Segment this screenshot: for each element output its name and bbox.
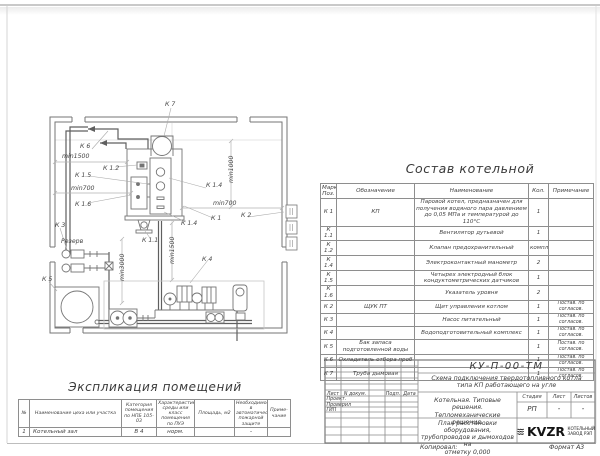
format-label: Формат А3 (549, 444, 584, 451)
explic-col-num: № (19, 400, 30, 428)
cell-name: Водоподготовительный комплекс (415, 326, 529, 339)
plan-label-min1500-vertical: min1500 (169, 237, 176, 264)
table-row: К 1.1Вентилятор дутьевой1 (321, 226, 594, 241)
cell-environment: норм. (157, 428, 195, 436)
cell-designation: Труба дымовая (337, 367, 415, 380)
plan-label-reserve: Резерв (61, 238, 84, 245)
cell-designation (337, 326, 415, 339)
explic-col-fire: Необходимость в автоматической пожарной … (235, 400, 268, 428)
cell-mark: К 1.2 (321, 241, 337, 256)
plan-label-k2: К 2 (241, 212, 251, 219)
cell-qty: 1 (529, 313, 549, 326)
cell-designation (337, 271, 415, 286)
role-chief-engineer: ГИП (327, 408, 357, 414)
cell-designation (337, 241, 415, 256)
cell-mark: К 5 (321, 339, 337, 354)
explic-col-category: Категория помещения по НПБ 105-03 (122, 400, 157, 428)
doc-number: КУ-П-00-ТМ (418, 361, 595, 373)
plan-label-k6: К 6 (80, 143, 90, 150)
water-treatment-k4 (137, 285, 247, 323)
sheet-header: Лист (547, 394, 571, 400)
table-row: 1 Котельный зал В 4 норм. - (19, 428, 291, 436)
cell-mark: К 1 (321, 198, 337, 226)
plan-label-min1000-vertical: min1000 (228, 156, 235, 183)
cell-name: Клапан предохранительный (415, 241, 529, 256)
table-row: К 1.2Клапан предохранительныйкомпл. (321, 241, 594, 256)
explication-table: № Наименование цеха или участка Категори… (18, 399, 291, 437)
cell-name: Электроконтактный манометр (415, 256, 529, 271)
sostav-col-note: Примечание (549, 184, 594, 199)
cell-qty: 2 (529, 256, 549, 271)
explic-col-note: Приме-чание (268, 400, 291, 428)
cell-note (549, 285, 594, 300)
logo-text: KVZR (527, 424, 565, 439)
plan-label-min700-left: min700 (71, 185, 95, 192)
explication-header-row: № Наименование цеха или участка Категори… (19, 400, 291, 428)
doc-description-line2: типа КП работающего на угле (420, 382, 593, 389)
company-name-line2: ЗАВОД РЭП (568, 431, 595, 436)
plan-label-k4: К 4 (202, 256, 212, 263)
plan-label-k1: К 1 (211, 215, 221, 222)
cell-qty: 2 (529, 285, 549, 300)
cell-qty: 1 (529, 339, 549, 354)
plan-label-min1500: min1500 (62, 153, 89, 160)
plan-label-k1-4-upper: К 1.4 (206, 182, 222, 189)
explic-col-area: Площадь, м2 (195, 400, 235, 428)
sheets-header: Листов (571, 394, 595, 400)
table-row: К 1.4Электроконтактный манометр2 (321, 256, 594, 271)
cell-num: 1 (19, 428, 30, 436)
cell-name: Вентилятор дутьевой (415, 226, 529, 241)
cell-note (549, 271, 594, 286)
cell-mark: К 6 (321, 354, 337, 367)
cell-note: Постав. по согласов. (549, 339, 594, 354)
doc-description-line1: Схема подключения твердотопливного котла (420, 375, 593, 382)
sostav-table: Марка Поз. Обозначение Наименование Кол.… (320, 183, 594, 381)
company-name: КОТЕЛЬНЫЙ ЗАВОД РЭП (568, 426, 595, 437)
cell-mark: К 1.5 (321, 271, 337, 286)
cell-qty: 1 (529, 300, 549, 313)
storage-tank-k5 (55, 287, 99, 327)
sostav-col-designation: Обозначение (337, 184, 415, 199)
table-row: К 1.6Указатель уровня2 (321, 285, 594, 300)
blower-fan-k1-1 (136, 220, 152, 233)
circulation-pumps (109, 309, 137, 327)
sostav-col-name: Наименование (415, 184, 529, 199)
header-sign-col: Подп. (385, 392, 401, 397)
table-row: К 4Водоподготовительный комплекс1Постав.… (321, 326, 594, 339)
plan-label-k5: К 5 (42, 276, 52, 283)
cell-name: Щит управления котлом (415, 300, 529, 313)
plan-label-k1-4-lower: К 1.4 (181, 220, 197, 227)
cell-designation: Бак запаса подготовленной воды (337, 339, 415, 354)
cell-fire: - (235, 428, 268, 436)
cell-name: Котельный зал (30, 428, 122, 436)
cell-note (268, 428, 291, 436)
cell-designation (337, 256, 415, 271)
cell-mark: К 4 (321, 326, 337, 339)
header-sheet-col: Лист (325, 392, 341, 397)
sostav-title: Состав котельной (370, 161, 570, 176)
cell-name: Насос питательный (415, 313, 529, 326)
cell-area (195, 428, 235, 436)
cell-designation: Охладитель отбора проб (337, 354, 415, 367)
cell-category: В 4 (122, 428, 157, 436)
stage-value: РП (517, 405, 547, 413)
logo-waves-icon (517, 425, 524, 438)
table-row: К 1КППаровой котел, предназначен для пол… (321, 198, 594, 226)
cell-note: Постав. по согласов. (549, 300, 594, 313)
cell-designation: КП (337, 198, 415, 226)
table-row: К 5Бак запаса подготовленной воды1Постав… (321, 339, 594, 354)
cell-name: Указатель уровня (415, 285, 529, 300)
cell-qty: компл. (529, 241, 549, 256)
cell-note (549, 241, 594, 256)
cell-note: Постав. по согласов. (549, 326, 594, 339)
plan-label-k1-5: К 1.5 (75, 172, 91, 179)
explication-title: Экспликация помещений (35, 380, 275, 394)
company-logo: KVZR КОТЕЛЬНЫЙ ЗАВОД РЭП (517, 419, 595, 443)
stage-header: Стадия (517, 394, 547, 400)
drawing-sheet: К 7 К 6 min1500 К 1.2 К 1.5 min700 К 1.6… (0, 0, 600, 450)
cell-mark: К 1.4 (321, 256, 337, 271)
drawing-title-line1: План расстановки оборудования, (419, 420, 516, 435)
plan-label-k1-1: К 1.1 (142, 237, 158, 244)
project-name-line1: Котельная. Типовые решения. (419, 397, 516, 412)
plan-label-min700-right: min700 (213, 200, 237, 207)
cell-mark: К 2 (321, 300, 337, 313)
control-cabinets-k2 (286, 205, 297, 250)
feed-pumps-k3 (62, 250, 113, 272)
cell-mark: К 7 (321, 367, 337, 380)
table-row: К 1.5Четырех электродный блок кондуктоме… (321, 271, 594, 286)
cell-name (415, 339, 529, 354)
sheet-value: - (547, 405, 571, 413)
header-doc-col: N докум. (341, 392, 369, 397)
explic-col-environment: Характеристика среды или класс помещения… (157, 400, 195, 428)
explic-col-name: Наименование цеха или участка (30, 400, 122, 428)
cell-designation: ЩУК ПТ (337, 300, 415, 313)
plan-label-min3000-vertical: min3000 (119, 254, 126, 281)
plan-label-k1-6: К 1.6 (75, 201, 91, 208)
cell-name: Паровой котел, предназначен для получени… (415, 198, 529, 226)
sheets-value: - (571, 405, 595, 413)
copied-by-label: Копировал: (420, 444, 457, 451)
doc-description: Схема подключения твердотопливного котла… (420, 375, 593, 390)
sostav-col-qty: Кол. (529, 184, 549, 199)
cell-note (549, 226, 594, 241)
cell-mark: К 1.1 (321, 226, 337, 241)
cell-mark: К 3 (321, 313, 337, 326)
sostav-header-row: Марка Поз. Обозначение Наименование Кол.… (321, 184, 594, 199)
table-row: К 3Насос питательный1Постав. по согласов… (321, 313, 594, 326)
cell-note (549, 256, 594, 271)
cell-qty: 1 (529, 326, 549, 339)
cell-qty: 1 (529, 198, 549, 226)
cell-designation (337, 226, 415, 241)
cell-name: Четырех электродный блок кондуктометриче… (415, 271, 529, 286)
cell-designation (337, 313, 415, 326)
boiler-k1 (125, 149, 184, 220)
cell-designation (337, 285, 415, 300)
sostav-col-mark: Марка Поз. (321, 184, 337, 199)
plan-label-k7: К 7 (165, 101, 175, 108)
table-row: К 2ЩУК ПТЩит управления котлом1Постав. п… (321, 300, 594, 313)
cell-qty: 1 (529, 226, 549, 241)
cell-note: Постав. по согласов. (549, 313, 594, 326)
cell-mark: К 1.6 (321, 285, 337, 300)
cell-note (549, 198, 594, 226)
plan-label-k3: К 3 (55, 222, 65, 229)
plan-label-k1-2: К 1.2 (103, 165, 119, 172)
header-date-col: Дата (401, 392, 418, 397)
cell-qty: 1 (529, 271, 549, 286)
